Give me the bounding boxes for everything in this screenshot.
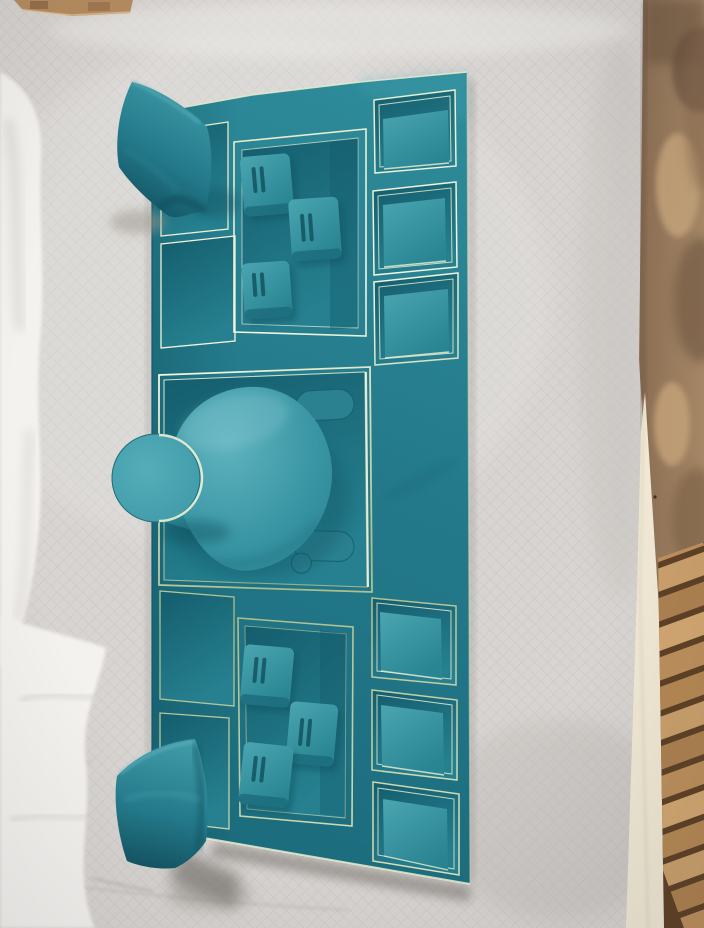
vignette	[0, 0, 704, 928]
photo-canvas	[0, 0, 704, 928]
